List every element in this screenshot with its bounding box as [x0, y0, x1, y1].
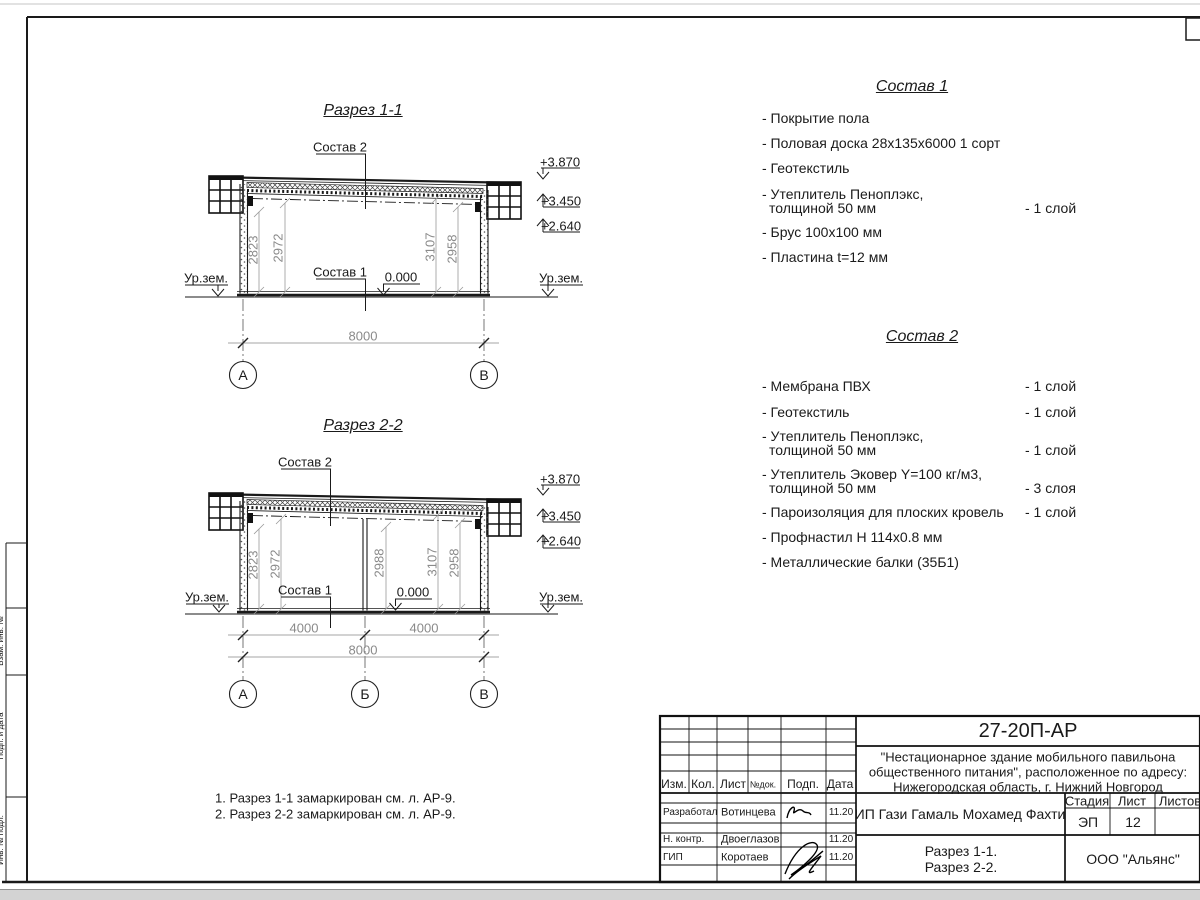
window-bottom-strip [0, 889, 1200, 900]
dim-span: 4000 [410, 622, 439, 635]
zero-level-mark: 0.000 [397, 586, 430, 599]
side-strip-label: Подп. и дата [0, 712, 5, 759]
note-line: 1. Разрез 1-1 замаркирован см. л. АР-9. [215, 792, 456, 805]
sostav2-callout: Состав 2 [313, 141, 367, 154]
col-header-list: Лист [720, 778, 746, 790]
list-item: толщиной 50 мм [769, 443, 876, 457]
elevation-mark: +2.640 [541, 220, 581, 233]
list-item: - Пароизоляция для плоских кровель [762, 505, 1004, 519]
section-1-title: Разрез 1-1 [323, 103, 402, 119]
sheet-header: Лист [1118, 795, 1146, 808]
list-item: - Половая доска 28х135х6000 1 сорт [762, 136, 1000, 150]
row-name: Вотинцева [721, 808, 776, 819]
ground-level-label: Ур.зем. [539, 272, 583, 285]
sostav1-callout: Состав 1 [313, 266, 367, 279]
client-name: ИП Гази Гамаль Мохамед Фахти [855, 807, 1066, 821]
axes-s1 [228, 299, 499, 389]
dim-vertical: 2972 [272, 234, 285, 263]
list-item-qty: - 1 слой [1025, 201, 1076, 215]
elevation-mark: +2.640 [541, 535, 581, 548]
sheet-title-line: Разрез 1-1. [925, 844, 998, 858]
list-item: - Металлические балки (35Б1) [762, 555, 959, 569]
dim-vertical: 2958 [448, 549, 461, 578]
col-header-kol: Кол. [691, 778, 715, 790]
list-item-qty: - 1 слой [1025, 443, 1076, 457]
stage-header: Стадия [1065, 795, 1109, 808]
note-line: 2. Разрез 2-2 замаркирован см. л. АР-9. [215, 808, 456, 821]
ground-level-label: Ур.зем. [539, 591, 583, 604]
list-item: - Геотекстиль [762, 405, 849, 419]
dim-span: 4000 [290, 622, 319, 635]
col-header-data: Дата [827, 778, 854, 790]
sheets-header: Листов [1159, 795, 1200, 808]
list-item-qty: - 1 слой [1025, 505, 1076, 519]
row-date: 11.20 [829, 808, 853, 818]
sostav1-callout: Состав 1 [278, 584, 332, 597]
project-name-line: Нижегородская область, г. Нижний Новгоро… [893, 781, 1163, 794]
list-item: - Утеплитель Эковер Y=100 кг/м3, [762, 467, 982, 481]
doc-code: 27-20П-АР [979, 721, 1078, 741]
dim-vertical: 2988 [373, 549, 386, 578]
list-item: толщиной 50 мм [769, 201, 876, 215]
list-item: - Геотекстиль [762, 161, 849, 175]
sostav1-list-title: Состав 1 [876, 79, 948, 95]
project-name-line: общественного питания", расположенное по… [869, 766, 1187, 779]
list-item-qty: - 1 слой [1025, 379, 1076, 393]
project-name-line: "Нестационарное здание мобильного павиль… [881, 751, 1176, 764]
section-2-title: Разрез 2-2 [323, 418, 402, 434]
dim-total: 8000 [349, 644, 378, 657]
list-item: - Утеплитель Пеноплэкс, [762, 429, 923, 443]
col-header-podp: Подп. [787, 778, 819, 790]
list-item: - Брус 100х100 мм [762, 225, 882, 239]
list-item-qty: - 1 слой [1025, 405, 1076, 419]
axis-label-b: Б [360, 687, 369, 701]
list-item: - Утеплитель Пеноплэкс, [762, 187, 923, 201]
dim-vertical: 3107 [424, 233, 437, 262]
elevation-mark: +3.870 [540, 473, 580, 486]
ground-level-label: Ур.зем. [185, 591, 229, 604]
list-item-qty: - 3 слоя [1025, 481, 1076, 495]
row-role: Н. контр. [663, 835, 704, 845]
section-2-2-drawing [185, 469, 583, 708]
row-date: 11.20 [829, 835, 853, 845]
sheet-title-line: Разрез 2-2. [925, 860, 998, 874]
axis-label-a: А [238, 368, 247, 382]
elevation-mark: +3.870 [540, 156, 580, 169]
sostav2-list-title: Состав 2 [886, 329, 958, 345]
signatures [785, 807, 823, 879]
row-role: ГИП [663, 853, 683, 863]
elevation-mark: +3.450 [541, 510, 581, 523]
row-name: Коротаев [721, 853, 769, 864]
dim-vertical: 2958 [446, 235, 459, 264]
elevation-mark: +3.450 [541, 195, 581, 208]
dim-total: 8000 [349, 330, 378, 343]
side-strip-label: Инв. № подл. [0, 815, 5, 865]
list-item: - Покрытие пола [762, 111, 869, 125]
ground-level-label: Ур.зем. [184, 272, 228, 285]
row-date: 11.20 [829, 853, 853, 863]
row-name: Двоеглазов [721, 835, 779, 846]
list-item: - Пластина t=12 мм [762, 250, 888, 264]
dim-vertical: 3107 [426, 548, 439, 577]
col-header-izm: Изм. [661, 778, 687, 790]
axis-label-v: В [479, 687, 488, 701]
sheet-value: 12 [1125, 815, 1141, 829]
dim-vertical: 2823 [247, 551, 260, 580]
col-header-ndok: №док. [750, 781, 776, 790]
list-item: - Мембрана ПВХ [762, 379, 871, 393]
zero-level-mark: 0.000 [385, 271, 418, 284]
list-item: толщиной 50 мм [769, 481, 876, 495]
axis-label-a: А [238, 687, 247, 701]
dim-vertical: 2972 [269, 550, 282, 579]
sostav2-callout: Состав 2 [278, 456, 332, 469]
drawing-sheet: Разрез 1-1 Состав 2 Состав 1 0.000 Ур.зе… [0, 0, 1200, 900]
list-item: - Профнастил Н 114х0.8 мм [762, 530, 942, 544]
company-name: ООО "Альянс" [1086, 852, 1180, 866]
dim-vertical: 2823 [247, 236, 260, 265]
stage-value: ЭП [1078, 815, 1098, 829]
row-role: Разработал [663, 808, 717, 818]
side-strip-label: Взам. инв. № [0, 616, 5, 666]
axis-label-b: В [479, 368, 488, 382]
